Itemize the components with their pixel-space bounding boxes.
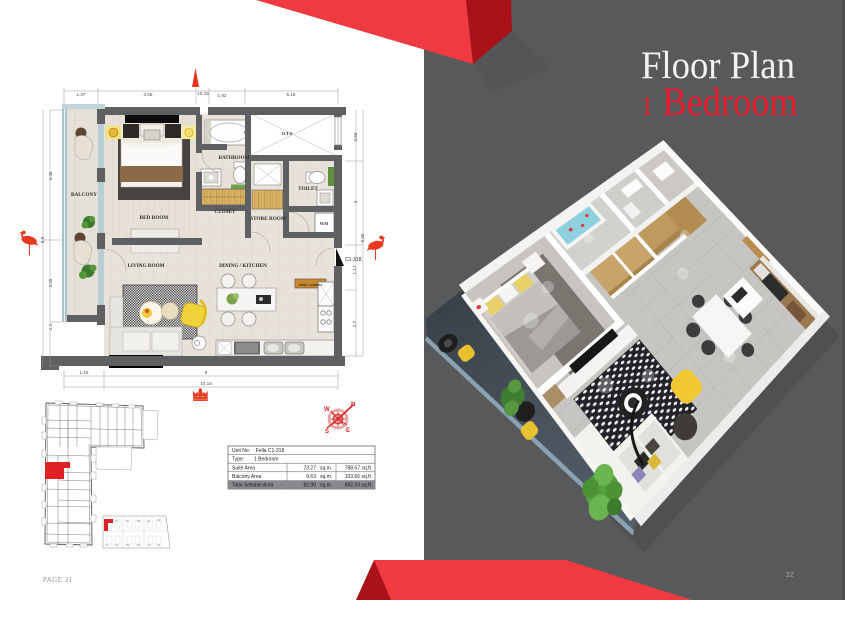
svg-text:O.T.S: O.T.S xyxy=(282,131,293,136)
svg-text:W: W xyxy=(324,407,330,413)
svg-text:A3: A3 xyxy=(147,543,151,547)
svg-text:A1: A1 xyxy=(147,519,151,523)
svg-text:10.15: 10.15 xyxy=(197,91,209,96)
svg-text:W.M: W.M xyxy=(320,221,329,226)
svg-text:sq.ft.: sq.ft. xyxy=(362,465,373,471)
svg-text:3.68: 3.68 xyxy=(144,92,153,97)
svg-text:B4: B4 xyxy=(126,543,130,547)
svg-text:103.66: 103.66 xyxy=(345,474,361,480)
svg-text:10.15: 10.15 xyxy=(200,381,212,386)
svg-text:82.90: 82.90 xyxy=(303,483,316,489)
svg-text:N: N xyxy=(351,402,355,408)
svg-text:C1: C1 xyxy=(105,543,109,547)
svg-text:TOILET: TOILET xyxy=(298,186,318,192)
svg-text:2.7: 2.7 xyxy=(352,320,357,327)
svg-text:SHOE CABINET: SHOE CABINET xyxy=(299,283,323,287)
svg-text:Unit No: Fella C1-318: Unit No: Fella C1-318 xyxy=(232,448,284,454)
svg-text:1.92: 1.92 xyxy=(218,93,227,98)
svg-text:5.18: 5.18 xyxy=(287,92,296,97)
svg-text:3.25: 3.25 xyxy=(48,278,53,287)
svg-text:sq.m.: sq.m. xyxy=(320,483,332,489)
svg-text:3.68: 3.68 xyxy=(353,132,358,141)
svg-text:Balcony Area: Balcony Area xyxy=(232,474,262,480)
svg-text:73.27: 73.27 xyxy=(303,465,316,471)
svg-text:C2: C2 xyxy=(115,519,119,523)
svg-text:1.37: 1.37 xyxy=(77,92,86,97)
svg-text:C3: C3 xyxy=(115,543,119,547)
svg-text:A4: A4 xyxy=(157,543,161,547)
svg-text:BATHROOM: BATHROOM xyxy=(218,155,249,161)
svg-text:892.33: 892.33 xyxy=(345,483,361,489)
svg-text:B3: B3 xyxy=(137,543,141,547)
svg-text:sq.m.: sq.m. xyxy=(320,474,332,480)
svg-text:1.15: 1.15 xyxy=(80,370,89,375)
svg-text:788.67: 788.67 xyxy=(345,465,361,471)
svg-text:9.00: 9.00 xyxy=(360,233,365,242)
svg-text:BALCONY: BALCONY xyxy=(71,192,97,198)
svg-text:BED ROOM: BED ROOM xyxy=(140,215,169,221)
svg-text:DINING / KITCHEN: DINING / KITCHEN xyxy=(219,263,267,269)
svg-text:9: 9 xyxy=(205,370,208,375)
svg-text:E: E xyxy=(346,428,350,434)
svg-text:sq.ft.: sq.ft. xyxy=(362,483,373,489)
svg-text:CLOSET: CLOSET xyxy=(214,209,236,215)
svg-text:9.63: 9.63 xyxy=(306,474,316,480)
svg-text:1.17: 1.17 xyxy=(352,265,357,274)
svg-text:B1: B1 xyxy=(126,519,130,523)
svg-text:8.9: 8.9 xyxy=(40,236,45,243)
svg-text:STORE ROOM: STORE ROOM xyxy=(250,216,286,222)
svg-text:B2: B2 xyxy=(137,519,141,523)
svg-text:Type: 1 Bedroom: Type: 1 Bedroom xyxy=(232,457,278,463)
svg-text:Total Sellable Area: Total Sellable Area xyxy=(232,483,274,489)
svg-text:sq.ft.: sq.ft. xyxy=(362,474,373,480)
svg-text:C1-318: C1-318 xyxy=(345,257,362,263)
svg-text:S: S xyxy=(325,429,329,435)
svg-text:sq.m.: sq.m. xyxy=(320,465,332,471)
svg-text:LIVING ROOM: LIVING ROOM xyxy=(127,263,164,269)
svg-text:3: 3 xyxy=(353,200,358,203)
svg-text:A2: A2 xyxy=(157,518,161,522)
svg-text:Suite Area: Suite Area xyxy=(232,465,255,471)
svg-text:1.2: 1.2 xyxy=(48,323,53,330)
svg-text:4.45: 4.45 xyxy=(48,171,53,180)
